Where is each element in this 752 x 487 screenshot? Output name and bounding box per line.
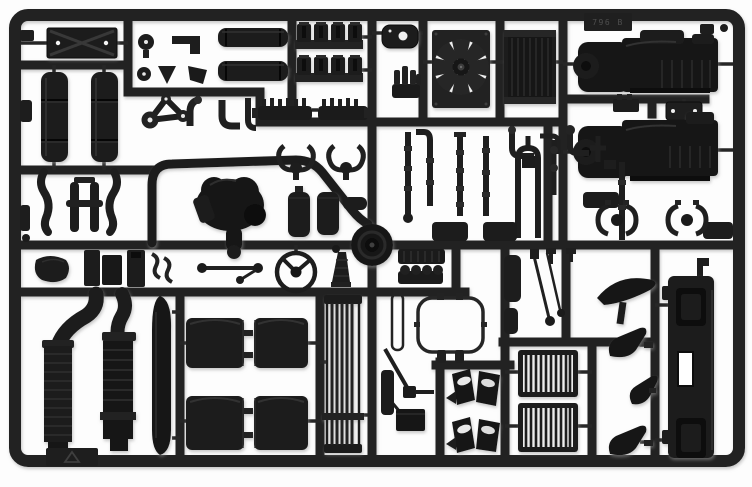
mudguard-2 (254, 318, 308, 368)
panel-blocks (84, 250, 145, 287)
sprue-photo: 796 B (0, 0, 752, 487)
air-tank-left (41, 72, 68, 162)
fan-blades (433, 39, 489, 95)
sprue-id-tag-text: 796 B (592, 18, 624, 27)
mudguard-3 (186, 396, 253, 450)
air-tank-right (91, 72, 118, 162)
silencer-bar-1 (218, 28, 288, 47)
louvered-step-grille-1 (518, 350, 578, 397)
wheel-hub-drum (351, 224, 393, 266)
finned-valve-cover (398, 249, 445, 264)
sprue-id-tag: 796 B (584, 13, 632, 31)
radiator-fan-with-shroud (432, 30, 490, 108)
exhaust-manifold-bumps (398, 265, 443, 284)
canister-small (343, 197, 367, 210)
small-tank-2 (317, 192, 339, 235)
silencer-bar-2 (218, 61, 288, 81)
radiator-core (504, 30, 556, 104)
front-bumper (662, 276, 714, 458)
mudguard-4 (254, 396, 308, 450)
seat-base (35, 256, 69, 282)
cab-floor-panel (47, 28, 117, 58)
engine-cover-plate (382, 25, 418, 48)
louvered-step-grille-2 (518, 403, 578, 452)
material-tab (46, 448, 98, 466)
mudguard-1 (186, 318, 253, 368)
small-tank-1 (288, 186, 310, 237)
battery-box (396, 409, 425, 431)
side-block (381, 370, 394, 415)
side-skirt-blade (152, 296, 171, 455)
